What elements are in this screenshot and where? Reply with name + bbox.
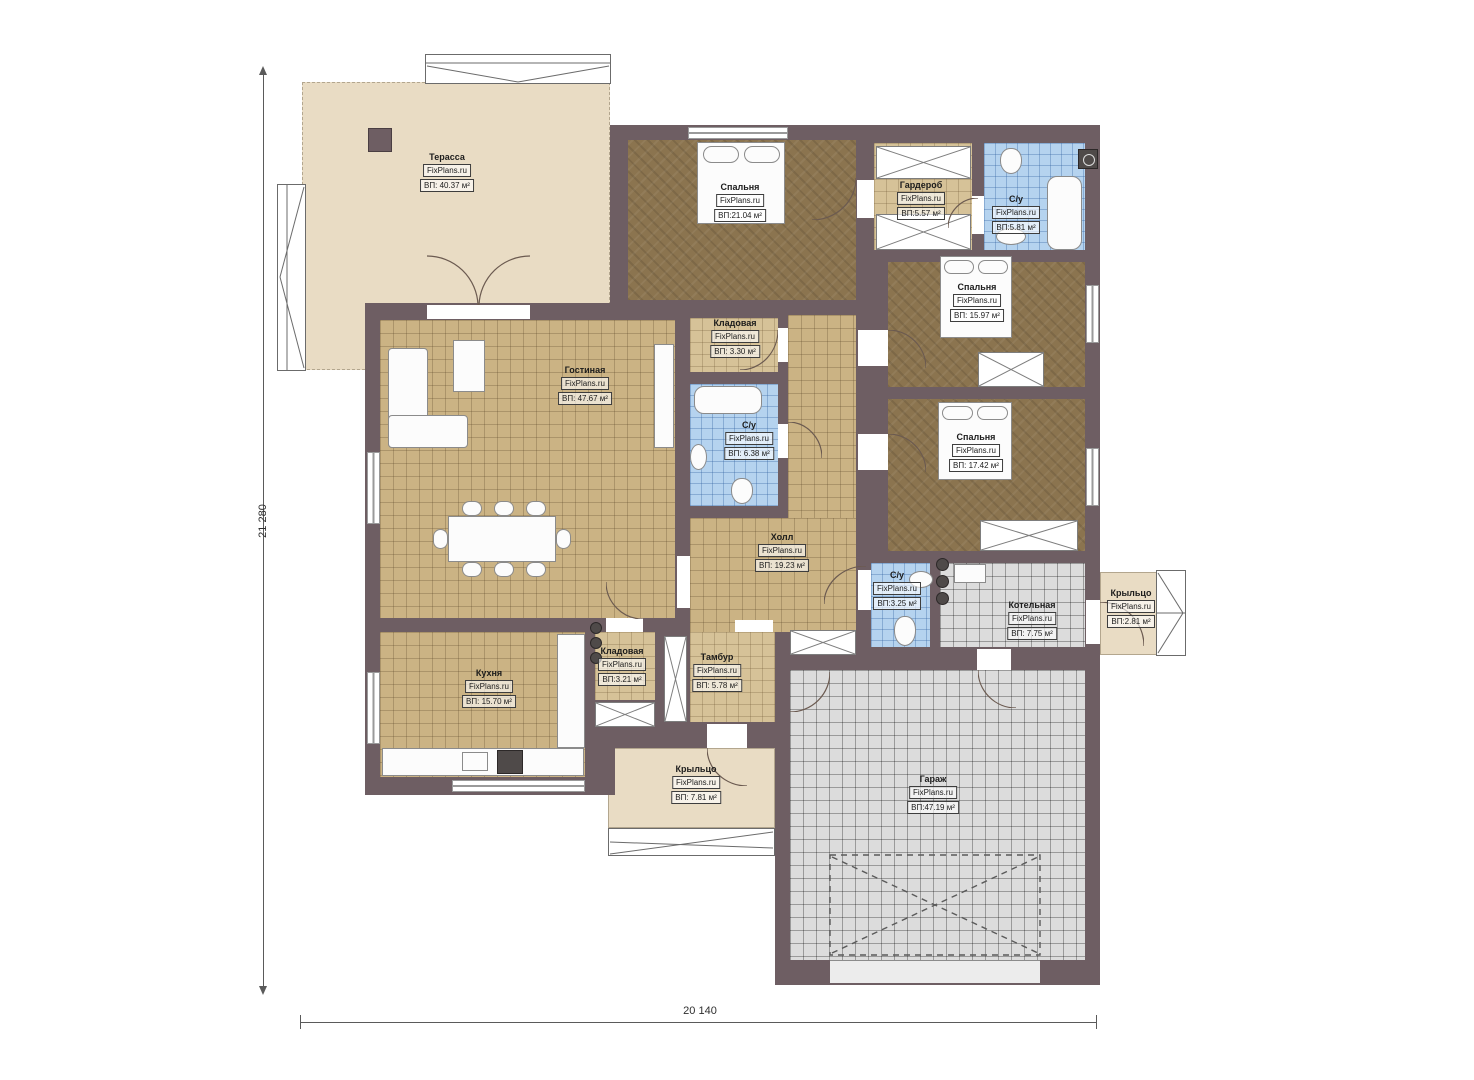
room-name: Крыльцо [1111,588,1152,598]
chair [526,562,546,577]
room-area: ВП:3.25 м² [873,597,920,610]
room-area: ВП:5.81 м² [992,221,1039,234]
coffee-table [453,340,485,392]
room-label-boiler-room: Котельная FixPlans.ru ВП: 7.75 м² [1007,600,1057,640]
x-cross-icon [979,353,1043,386]
door-opening [858,434,888,470]
window [1086,448,1099,506]
toilet [731,478,753,504]
door-arc-icon [888,330,926,368]
chimney-circle-icon [1083,154,1095,166]
dimension-label-left: 21 280 [257,486,269,556]
wardrobe-closet [978,352,1044,387]
bathtub [1047,176,1082,250]
bathtub [694,386,762,414]
door-arc-icon [788,422,822,458]
dimension-arrow-icon [259,986,267,995]
room-label-terrace: Терасса FixPlans.ru ВП: 40.37 м² [420,152,474,192]
window [452,780,585,792]
brand-label: FixPlans.ru [1107,600,1155,613]
room-name: Терасса [429,152,465,162]
room-name: Холл [771,532,794,542]
x-cross-icon [981,521,1077,550]
chimney-column [1078,149,1098,169]
room-area: ВП: 15.70 м² [462,695,516,708]
x-cross-icon [791,631,855,654]
room-label-bedroom-2: Спальня FixPlans.ru ВП: 15.97 м² [950,282,1004,322]
dimension-line-horizontal [300,1022,1097,1023]
chair [494,501,514,516]
brand-label: FixPlans.ru [598,658,646,671]
porch-bottom-steps-icon [608,828,775,856]
door-opening [606,618,643,632]
pillow [978,260,1008,274]
room-label-bathroom-3: С/у FixPlans.ru ВП:3.25 м² [873,570,921,610]
room-area: ВП: 7.81 м² [671,791,721,804]
kitchen-sink [462,752,488,771]
room-area: ВП:5.57 м² [897,207,944,220]
chair [433,529,448,549]
room-area: ВП: 40.37 м² [420,179,474,192]
room-name: Котельная [1008,600,1055,610]
room-area: ВП:3.21 м² [598,673,645,686]
door-arc-icon [606,582,643,619]
brand-label: FixPlans.ru [952,444,1000,457]
room-label-bedroom-1: Спальня FixPlans.ru ВП:21.04 м² [714,182,766,222]
brand-label: FixPlans.ru [909,786,957,799]
room-name: Гараж [920,774,947,784]
room-label-living-room: Гостиная FixPlans.ru ВП: 47.67 м² [558,365,612,405]
pillow [744,146,780,163]
window [367,452,380,524]
door-arc-icon [888,434,926,472]
brand-label: FixPlans.ru [992,206,1040,219]
room-name: С/у [1009,194,1023,204]
room-label-storage-2: Кладовая FixPlans.ru ВП:3.21 м² [598,646,646,686]
brand-label: FixPlans.ru [758,544,806,557]
chair [526,501,546,516]
door-opening [677,556,690,608]
room-label-garage: Гараж FixPlans.ru ВП:47.19 м² [907,774,959,814]
brand-label: FixPlans.ru [711,330,759,343]
door-arc-icon [427,250,530,305]
chair [462,501,482,516]
room-area: ВП:47.19 м² [907,801,959,814]
brand-label: FixPlans.ru [1008,612,1056,625]
room-name: Спальня [957,432,996,442]
room-name: Кладовая [600,646,643,656]
room-label-hall: Холл FixPlans.ru ВП: 19.23 м² [755,532,809,572]
chair [462,562,482,577]
door-arc-icon [790,672,830,712]
door-arc-icon [824,566,866,604]
dimension-tick [1096,1015,1097,1029]
door-opening [707,724,747,748]
wardrobe-closet [595,702,655,727]
x-cross-icon [665,637,686,721]
window [1086,285,1099,343]
pillow [703,146,739,163]
boiler-unit-icon [936,558,949,571]
room-label-bedroom-3: Спальня FixPlans.ru ВП: 17.42 м² [949,432,1003,472]
room-name: Гардероб [900,180,943,190]
door-opening [1086,600,1100,644]
kitchen-counter [557,634,585,748]
tv-stand [654,344,674,448]
brand-label: FixPlans.ru [725,432,773,445]
room-label-bathroom-2: С/у FixPlans.ru ВП: 6.38 м² [724,420,774,460]
door-opening [427,305,530,319]
door-opening [857,180,874,218]
room-name: Кладовая [713,318,756,328]
chair [494,562,514,577]
room-label-storage-1: Кладовая FixPlans.ru ВП: 3.30 м² [710,318,760,358]
boiler-unit-icon [936,592,949,605]
terrace-top-steps-icon [425,54,611,84]
door-arc-icon [948,198,978,228]
door-arc-icon [978,670,1016,708]
terrace-column [368,128,392,152]
room-label-porch-bottom: Крыльцо FixPlans.ru ВП: 7.81 м² [671,764,721,804]
room-area: ВП: 47.67 м² [558,392,612,405]
room-area: ВП: 6.38 м² [724,447,774,460]
room-area: ВП: 3.30 м² [710,345,760,358]
toilet [894,616,916,646]
room-area: ВП: 15.97 м² [950,309,1004,322]
brand-label: FixPlans.ru [672,776,720,789]
window [688,127,788,139]
wardrobe-closet [980,520,1078,551]
toilet [1000,148,1022,174]
brand-label: FixPlans.ru [953,294,1001,307]
room-name: С/у [742,420,756,430]
floor-plan: Терасса FixPlans.ru ВП: 40.37 м² Спальня… [0,0,1474,1080]
pillow [944,260,974,274]
room-area: ВП: 17.42 м² [949,459,1003,472]
dining-table [448,516,556,562]
room-name: Кухня [476,668,502,678]
gas-meter-icon [590,622,602,634]
brand-label: FixPlans.ru [693,664,741,677]
wardrobe-closet [664,636,687,722]
room-name: Крыльцо [676,764,717,774]
window [367,672,380,744]
door-opening [735,620,773,632]
room-name: С/у [890,570,904,580]
brand-label: FixPlans.ru [465,680,513,693]
brand-label: FixPlans.ru [897,192,945,205]
x-cross-icon [877,147,970,178]
boiler-unit-icon [936,575,949,588]
door-opening [778,328,788,362]
room-label-vestibule: Тамбур FixPlans.ru ВП: 5.78 м² [692,652,742,692]
room-name: Спальня [958,282,997,292]
sink [690,444,707,470]
sofa [388,415,468,448]
door-opening [858,330,888,366]
door-arc-icon [812,178,856,220]
dimension-arrow-icon [259,66,267,75]
porch-right-steps-icon [1156,570,1186,656]
brand-label: FixPlans.ru [873,582,921,595]
room-name: Гостиная [565,365,606,375]
brand-label: FixPlans.ru [561,377,609,390]
garage-door-opening [830,960,1040,983]
boiler-sink [954,564,986,583]
door-opening [977,649,1011,670]
room-area: ВП: 5.78 м² [692,679,742,692]
room-area: ВП:21.04 м² [714,209,766,222]
terrace-left-steps-icon [277,184,306,371]
door-opening [778,424,788,458]
room-name: Тамбур [701,652,734,662]
hall-corridor-floor [788,315,856,520]
parking-space-marking [828,853,1042,957]
x-cross-icon [596,703,654,726]
room-label-bathroom-1: С/у FixPlans.ru ВП:5.81 м² [992,194,1040,234]
room-label-porch-right: Крыльцо FixPlans.ru ВП:2.81 м² [1107,588,1155,628]
room-label-kitchen: Кухня FixPlans.ru ВП: 15.70 м² [462,668,516,708]
brand-label: FixPlans.ru [423,164,471,177]
dimension-tick [300,1015,301,1029]
pillow [942,406,973,420]
wardrobe-closet [790,630,856,655]
room-area: ВП: 19.23 м² [755,559,809,572]
room-name: Спальня [721,182,760,192]
chair [556,529,571,549]
room-area: ВП: 7.75 м² [1007,627,1057,640]
wardrobe-closet [876,146,971,179]
dimension-label-bottom: 20 140 [650,1005,750,1017]
brand-label: FixPlans.ru [716,194,764,207]
stove [497,750,523,774]
room-label-wardrobe: Гардероб FixPlans.ru ВП:5.57 м² [897,180,945,220]
pillow [977,406,1008,420]
room-area: ВП:2.81 м² [1107,615,1154,628]
